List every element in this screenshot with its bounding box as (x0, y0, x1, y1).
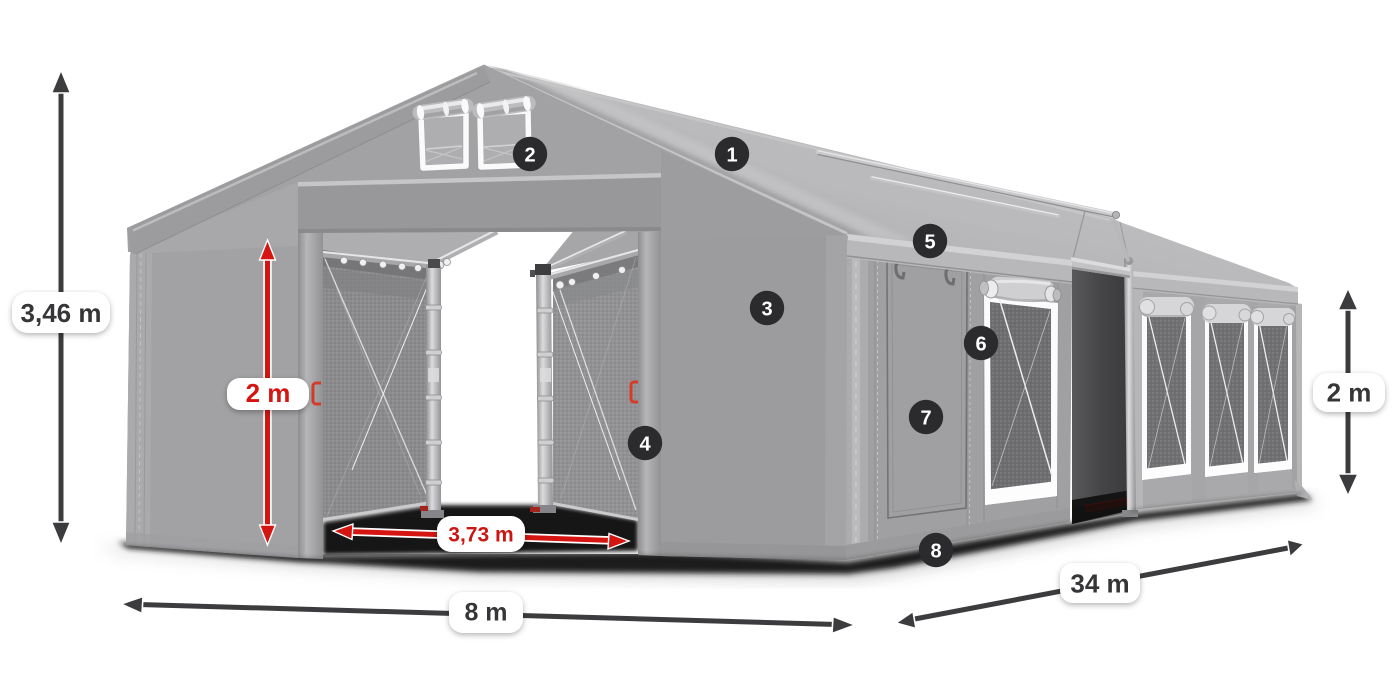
svg-text:2 m: 2 m (246, 378, 291, 408)
svg-text:7: 7 (920, 408, 931, 430)
svg-text:3,73 m: 3,73 m (448, 524, 513, 547)
svg-text:8: 8 (930, 541, 941, 563)
svg-text:4: 4 (639, 434, 651, 456)
svg-text:8 m: 8 m (464, 599, 507, 627)
svg-text:6: 6 (975, 334, 986, 356)
svg-text:34 m: 34 m (1070, 569, 1129, 599)
svg-text:2: 2 (524, 145, 535, 167)
svg-text:2 m: 2 m (1327, 378, 1372, 408)
svg-text:1: 1 (726, 145, 737, 167)
svg-text:3: 3 (761, 299, 772, 321)
svg-text:3,46 m: 3,46 m (21, 298, 102, 328)
svg-text:5: 5 (924, 232, 935, 254)
